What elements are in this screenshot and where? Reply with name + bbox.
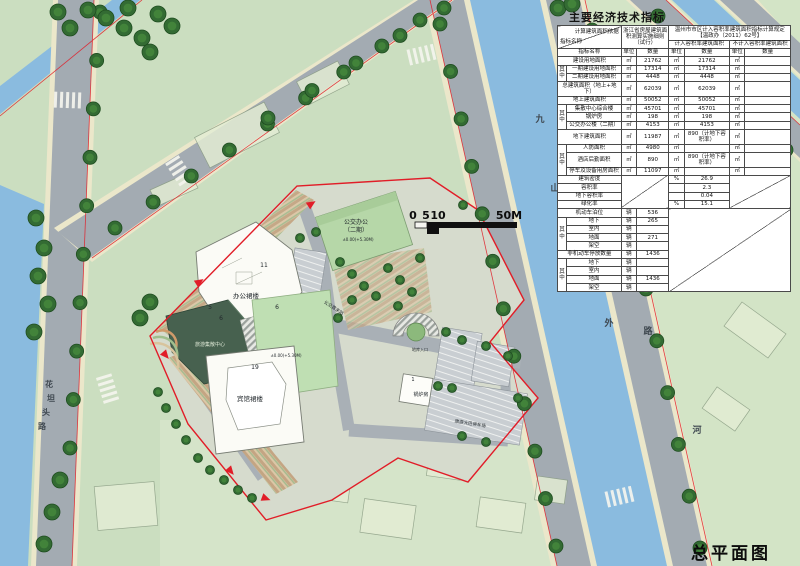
- tree-icon: [374, 294, 379, 299]
- table-cell: 辆: [621, 267, 636, 275]
- tree-icon: [489, 257, 497, 265]
- table-cell: 890（计地下容积率）: [684, 130, 730, 145]
- map-label: 19: [251, 364, 259, 371]
- map-label: ±0.00(+5.30M): [270, 353, 302, 358]
- table-cell: [745, 167, 791, 175]
- table-cell: 21762: [637, 57, 669, 65]
- corner-top-label: 计算建筑面积依据: [559, 28, 620, 35]
- map-label: 路: [38, 421, 47, 431]
- table-row: 总建筑面积（地上+地下）㎡62039㎡62039㎡: [558, 82, 791, 97]
- table-cell: 地上建筑面积: [558, 96, 622, 104]
- table-cell: 50052: [637, 96, 669, 104]
- map-label: （二期）: [344, 226, 368, 234]
- tree-icon: [338, 260, 343, 265]
- table-cell: 21762: [684, 57, 730, 65]
- table-cell: %: [669, 175, 684, 183]
- tree-icon: [196, 456, 201, 461]
- table-cell: [745, 121, 791, 129]
- tree-icon: [664, 389, 672, 397]
- table-row: 地上建筑面积㎡50052㎡50052㎡: [558, 96, 791, 104]
- table-cell: ㎡: [621, 82, 636, 97]
- table-cell: ㎡: [621, 130, 636, 145]
- tree-icon: [76, 299, 84, 307]
- tree-icon: [675, 441, 683, 449]
- indicators-table-title: 主要经济技术指标: [569, 9, 665, 25]
- col-header-qty3: 数量: [745, 48, 791, 56]
- table-cell: ㎡: [669, 65, 684, 73]
- tree-icon: [124, 4, 133, 13]
- table-cell: 其中: [558, 65, 567, 82]
- map-label: 6: [219, 315, 223, 322]
- table-cell: 地下: [567, 217, 622, 225]
- tree-icon: [56, 476, 65, 485]
- tree-icon: [506, 354, 511, 359]
- tree-icon: [138, 34, 147, 43]
- table-row: 建筑密度%26.9: [558, 175, 791, 183]
- table-cell: 辆: [621, 284, 636, 292]
- table-cell: 271: [637, 234, 669, 242]
- tree-icon: [102, 14, 111, 23]
- table-cell: ㎡: [730, 73, 745, 81]
- table-cell: 辆: [621, 242, 636, 250]
- table-cell: 地下: [567, 259, 622, 267]
- table-cell: ㎡: [621, 65, 636, 73]
- table-cell: 架空: [567, 284, 622, 292]
- tree-icon: [69, 396, 77, 404]
- table-cell: ㎡: [730, 167, 745, 175]
- tree-icon: [350, 298, 355, 303]
- table-cell: 26.9: [684, 175, 730, 183]
- map-label: 公交办公: [344, 218, 368, 226]
- table-cell: 其中: [558, 259, 567, 292]
- map-label: 地库入口: [412, 346, 428, 352]
- basis2-header: 温州市市区计入容积率建筑面积指标计算规定【温政办（2011）62号】: [669, 26, 791, 41]
- table-cell: ㎡: [621, 105, 636, 113]
- tree-icon: [531, 447, 539, 455]
- table-cell: [745, 82, 791, 97]
- table-cell: ㎡: [730, 144, 745, 152]
- table-row: 其中人防面积㎡4980㎡㎡: [558, 144, 791, 152]
- table-cell: 2.3: [684, 184, 730, 192]
- table-cell: 地下容积率: [558, 192, 622, 200]
- table-row: 其中一期建设用地面积㎡17314㎡17314㎡: [558, 65, 791, 73]
- tree-icon: [308, 87, 316, 95]
- tree-icon: [86, 153, 94, 161]
- table-cell: 地下建筑面积: [558, 130, 622, 145]
- tree-icon: [653, 337, 661, 345]
- tree-icon: [89, 105, 97, 113]
- table-cell: ㎡: [730, 65, 745, 73]
- table-row: 地下建筑面积㎡11987㎡890（计地下容积率）㎡: [558, 130, 791, 145]
- tree-icon: [66, 444, 74, 452]
- table-cell: ㎡: [621, 167, 636, 175]
- table-cell: ㎡: [669, 73, 684, 81]
- table-cell: [745, 57, 791, 65]
- table-cell: ㎡: [730, 121, 745, 129]
- table-cell: [684, 167, 730, 175]
- tree-icon: [436, 384, 441, 389]
- sub-header-excluded: 不计入容积率建筑面积: [730, 40, 791, 48]
- map-label: 11: [260, 262, 268, 269]
- col-header-unit3: 单位: [730, 48, 745, 56]
- table-cell: 酒店后勤面积: [567, 153, 622, 168]
- table-cell: 人防面积: [567, 144, 622, 152]
- table-cell: 集散中心综合楼: [567, 105, 622, 113]
- indicators-table-body: 建设用地面积㎡21762㎡21762㎡其中一期建设用地面积㎡17314㎡1731…: [558, 57, 791, 292]
- tree-icon: [146, 48, 155, 57]
- table-cell: [745, 153, 791, 168]
- table-row: 停车及设备用房面积㎡11097㎡㎡: [558, 167, 791, 175]
- tree-icon: [264, 114, 272, 122]
- tree-icon: [468, 163, 476, 171]
- table-cell: 4448: [684, 73, 730, 81]
- scale-label-50m: 50M: [496, 209, 522, 222]
- tree-icon: [568, 0, 577, 8]
- tree-icon: [146, 298, 155, 307]
- table-cell: ㎡: [730, 96, 745, 104]
- tree-icon: [298, 236, 303, 241]
- table-cell: [745, 105, 791, 113]
- table-cell: ㎡: [730, 82, 745, 97]
- table-cell: 0.04: [684, 192, 730, 200]
- table-cell: ㎡: [621, 144, 636, 152]
- table-cell: [637, 267, 669, 275]
- table-cell: 45701: [637, 105, 669, 113]
- table-cell: [730, 175, 791, 208]
- scale-label-10: 10: [430, 209, 446, 222]
- tree-icon: [460, 338, 465, 343]
- map-label: 坦: [47, 393, 55, 403]
- table-cell: 45701: [684, 105, 730, 113]
- scale-label-5: 5: [422, 209, 430, 222]
- table-corner-cell: 计算建筑面积依据 指标名称: [558, 26, 622, 49]
- table-cell: 容积率: [558, 184, 622, 192]
- tree-icon: [111, 224, 119, 232]
- table-cell: ㎡: [621, 121, 636, 129]
- tree-icon: [154, 10, 163, 19]
- table-cell: 建设用地面积: [558, 57, 622, 65]
- tree-icon: [552, 542, 560, 550]
- tree-icon: [484, 344, 489, 349]
- table-cell: 辆: [621, 209, 636, 217]
- table-row: 其中集散中心综合楼㎡45701㎡45701㎡: [558, 105, 791, 113]
- table-cell: 50052: [684, 96, 730, 104]
- table-cell: ㎡: [669, 153, 684, 168]
- map-label: 锅炉房: [413, 391, 428, 398]
- map-label: 九: [534, 113, 544, 125]
- tree-icon: [416, 16, 424, 24]
- tree-icon: [447, 68, 455, 76]
- map-label: 路: [643, 325, 653, 337]
- table-cell: 265: [637, 217, 669, 225]
- tree-icon: [93, 57, 101, 65]
- tree-icon: [48, 508, 57, 517]
- indicators-table: 计算建筑面积依据 指标名称 浙江省房屋建筑面积测算实施细则（试行） 温州市市区计…: [557, 25, 791, 292]
- boiler-room-building: [399, 374, 433, 406]
- tree-icon: [444, 330, 449, 335]
- table-cell: [637, 284, 669, 292]
- tree-icon: [40, 244, 49, 253]
- table-cell: 198: [684, 113, 730, 121]
- tree-icon: [542, 495, 550, 503]
- table-cell: [745, 73, 791, 81]
- tree-icon: [499, 305, 507, 313]
- tree-icon: [516, 396, 521, 401]
- map-label: 头: [42, 407, 50, 417]
- table-row: 二期建设用地面积㎡4448㎡4448㎡: [558, 73, 791, 81]
- tree-icon: [30, 328, 39, 337]
- tree-icon: [685, 492, 693, 500]
- table-cell: ㎡: [730, 153, 745, 168]
- tree-icon: [184, 438, 189, 443]
- tree-icon: [84, 6, 93, 15]
- table-cell: [745, 130, 791, 145]
- map-label: 河: [692, 424, 701, 436]
- table-cell: 公交办公楼（二期）: [567, 121, 622, 129]
- col-header-unit1: 单位: [621, 48, 636, 56]
- basis1-header: 浙江省房屋建筑面积测算实施细则（试行）: [621, 26, 669, 49]
- table-cell: 辆: [621, 259, 636, 267]
- table-cell: 1436: [637, 250, 669, 258]
- table-cell: 辆: [621, 225, 636, 233]
- table-cell: ㎡: [669, 121, 684, 129]
- tree-icon: [40, 540, 49, 549]
- col-header-qty2: 数量: [684, 48, 730, 56]
- table-cell: 室内: [567, 267, 622, 275]
- table-cell: 890（计地下容积率）: [684, 153, 730, 168]
- table-cell: 架空: [567, 242, 622, 250]
- map-label: 办公裙楼: [233, 291, 260, 300]
- map-label: 旅游集散中心: [195, 341, 225, 348]
- tree-icon: [314, 230, 319, 235]
- table-cell: 机动车泊位: [558, 209, 622, 217]
- table-cell: 其中: [558, 144, 567, 175]
- table-cell: ㎡: [669, 96, 684, 104]
- table-cell: 其中: [558, 217, 567, 250]
- table-cell: 15.1: [684, 200, 730, 208]
- table-cell: [669, 192, 684, 200]
- table-cell: 1436: [637, 275, 669, 283]
- tree-icon: [66, 24, 75, 33]
- plan-title: 总平面图: [691, 539, 771, 564]
- table-cell: 4153: [637, 121, 669, 129]
- tree-icon: [222, 478, 227, 483]
- tree-icon: [484, 440, 489, 445]
- table-cell: 地面: [567, 234, 622, 242]
- tree-icon: [79, 250, 87, 258]
- table-cell: [621, 175, 669, 208]
- table-cell: [637, 259, 669, 267]
- table-cell: 4448: [637, 73, 669, 81]
- table-cell: ㎡: [730, 130, 745, 145]
- tree-icon: [457, 115, 465, 123]
- map-label: 1: [411, 377, 414, 383]
- tree-icon: [168, 22, 177, 31]
- tree-icon: [378, 42, 386, 50]
- tree-icon: [136, 314, 145, 323]
- tree-icon: [32, 214, 41, 223]
- table-cell: ㎡: [669, 167, 684, 175]
- table-row: 建设用地面积㎡21762㎡21762㎡: [558, 57, 791, 65]
- map-label: 外: [603, 317, 613, 329]
- table-cell: 辆: [621, 275, 636, 283]
- col-header-qty1: 数量: [637, 48, 669, 56]
- tree-icon: [396, 32, 404, 40]
- table-cell: ㎡: [669, 144, 684, 152]
- tree-icon: [396, 304, 401, 309]
- table-cell: 绿化率: [558, 200, 622, 208]
- tree-icon: [554, 4, 563, 13]
- master-plan-page: 公交办公（二期）±0.00(+5.30M)办公裙楼11566旅游集散中心±0.0…: [0, 0, 800, 566]
- table-cell: 17314: [684, 65, 730, 73]
- table-cell: 62039: [684, 82, 730, 97]
- tree-icon: [73, 347, 81, 355]
- table-cell: [745, 65, 791, 73]
- table-cell: 非机动车停放数量: [558, 250, 622, 258]
- table-cell: ㎡: [669, 130, 684, 145]
- map-label: 宾馆裙楼: [237, 394, 264, 403]
- tree-icon: [418, 256, 423, 261]
- table-cell: ㎡: [621, 153, 636, 168]
- table-cell: 辆: [621, 250, 636, 258]
- table-cell: ㎡: [669, 113, 684, 121]
- tree-icon: [478, 210, 486, 218]
- sub-header-included: 计入容积率建筑面积: [669, 40, 730, 48]
- tree-icon: [440, 4, 448, 12]
- table-cell: ㎡: [669, 57, 684, 65]
- table-cell: 4980: [637, 144, 669, 152]
- table-cell: 总建筑面积（地上+地下）: [558, 82, 622, 97]
- tree-icon: [250, 496, 255, 501]
- tree-icon: [398, 278, 403, 283]
- table-cell: 辆: [621, 217, 636, 225]
- table-cell: [669, 209, 791, 292]
- table-cell: 停车及设备用房面积: [567, 167, 622, 175]
- table-cell: ㎡: [669, 82, 684, 97]
- table-cell: 锅炉房: [567, 113, 622, 121]
- tree-icon: [461, 203, 466, 208]
- table-cell: %: [669, 200, 684, 208]
- table-cell: ㎡: [621, 57, 636, 65]
- tree-icon: [34, 272, 43, 281]
- table-cell: ㎡: [621, 73, 636, 81]
- table-row: 公交办公楼（二期）㎡4153㎡4153㎡: [558, 121, 791, 129]
- table-cell: 198: [637, 113, 669, 121]
- table-cell: 62039: [637, 82, 669, 97]
- tree-icon: [362, 284, 367, 289]
- table-cell: ㎡: [621, 96, 636, 104]
- map-label: ±0.00(+5.30M): [342, 237, 374, 242]
- tree-icon: [187, 172, 195, 180]
- table-row: 酒店后勤面积㎡890㎡890（计地下容积率）㎡: [558, 153, 791, 168]
- table-row: 机动车泊位辆536: [558, 209, 791, 217]
- table-cell: 11987: [637, 130, 669, 145]
- tree-icon: [336, 316, 341, 321]
- map-label: 5: [208, 304, 212, 311]
- tree-icon: [44, 300, 53, 309]
- map-label: 花: [45, 379, 53, 389]
- table-cell: [745, 96, 791, 104]
- table-cell: 其中: [558, 105, 567, 130]
- table-cell: 536: [637, 209, 669, 217]
- tree-icon: [54, 8, 63, 17]
- table-cell: [745, 144, 791, 152]
- tree-icon: [460, 434, 465, 439]
- tree-icon: [386, 266, 391, 271]
- table-cell: 地面: [567, 275, 622, 283]
- table-cell: [669, 184, 684, 192]
- tree-icon: [352, 59, 360, 67]
- table-cell: 建筑密度: [558, 175, 622, 183]
- tree-icon: [436, 20, 444, 28]
- tree-icon: [164, 406, 169, 411]
- tree-icon: [226, 146, 234, 154]
- table-cell: [637, 225, 669, 233]
- table-cell: ㎡: [730, 105, 745, 113]
- table-cell: 11097: [637, 167, 669, 175]
- tree-icon: [350, 272, 355, 277]
- scale-label-0: 0: [409, 209, 417, 222]
- table-cell: 室内: [567, 225, 622, 233]
- table-cell: ㎡: [669, 105, 684, 113]
- table-row: 锅炉房㎡198㎡198㎡: [558, 113, 791, 121]
- table-cell: [684, 144, 730, 152]
- table-cell: 17314: [637, 65, 669, 73]
- tree-icon: [156, 390, 161, 395]
- tree-icon: [149, 198, 157, 206]
- table-cell: 一期建设用地面积: [567, 65, 622, 73]
- tree-icon: [208, 468, 213, 473]
- table-cell: ㎡: [730, 113, 745, 121]
- tree-icon: [83, 202, 91, 210]
- table-cell: [745, 113, 791, 121]
- table-cell: 4153: [684, 121, 730, 129]
- tree-icon: [236, 488, 241, 493]
- tree-icon: [174, 422, 179, 427]
- tree-icon: [340, 68, 348, 76]
- table-cell: ㎡: [621, 113, 636, 121]
- table-cell: ㎡: [730, 57, 745, 65]
- tree-icon: [120, 24, 129, 33]
- table-cell: 二期建设用地面积: [567, 73, 622, 81]
- table-cell: 辆: [621, 234, 636, 242]
- col-header-name: 指标名称: [558, 48, 622, 56]
- table-cell: 890: [637, 153, 669, 168]
- tree-icon: [450, 386, 455, 391]
- tree-icon: [410, 290, 415, 295]
- corner-bottom-label: 指标名称: [559, 35, 620, 46]
- table-cell: [637, 242, 669, 250]
- col-header-unit2: 单位: [669, 48, 684, 56]
- map-label: 6: [275, 304, 279, 311]
